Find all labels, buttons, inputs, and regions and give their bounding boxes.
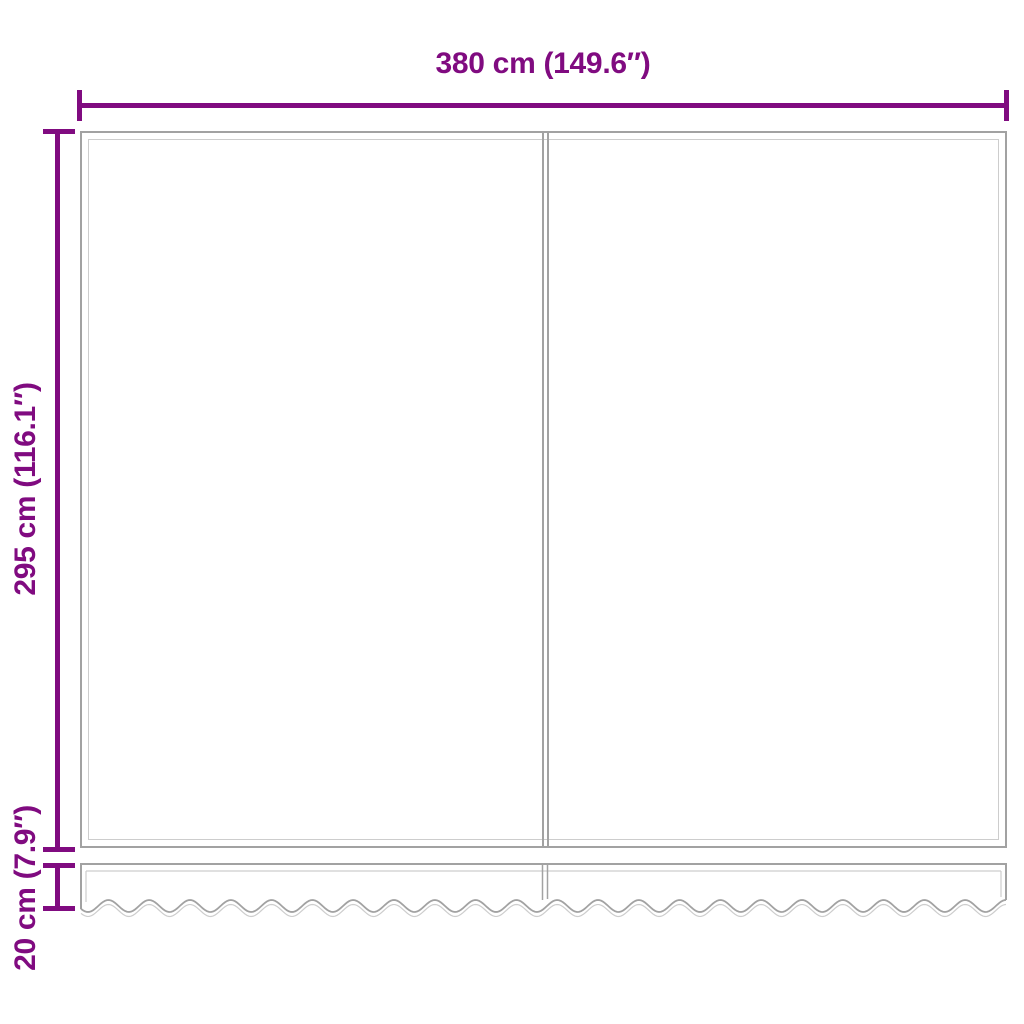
valance-hem-inner-line: [86, 871, 1001, 902]
valance-dimension-start-tick: [43, 863, 75, 868]
height-dimension-start-tick: [43, 129, 75, 134]
valance-center-seam: [543, 865, 548, 900]
width-dimension-start-tick: [77, 90, 82, 121]
valance-dimension-end-tick: [43, 906, 75, 911]
width-dimension-line: [80, 103, 1007, 108]
width-dimension-end-tick: [1004, 90, 1009, 121]
fabric-center-seam: [542, 133, 549, 846]
width-dimension-label: 380 cm (149.6″): [435, 47, 650, 81]
height-dimension-label: 295 cm (116.1″): [9, 382, 43, 595]
product-dimension-diagram: 380 cm (149.6″) 295 cm (116.1″) 20 cm (7…: [0, 0, 1024, 1024]
height-dimension-line: [55, 131, 60, 851]
valance-dimension-line: [55, 865, 60, 910]
valance-strip: [78, 861, 1010, 929]
awning-fabric-panel: [80, 131, 1007, 848]
height-dimension-end-tick: [43, 847, 75, 852]
valance-wavy-edge-outer: [81, 900, 1006, 912]
valance-dimension-label: 20 cm (7.9″): [9, 805, 43, 971]
